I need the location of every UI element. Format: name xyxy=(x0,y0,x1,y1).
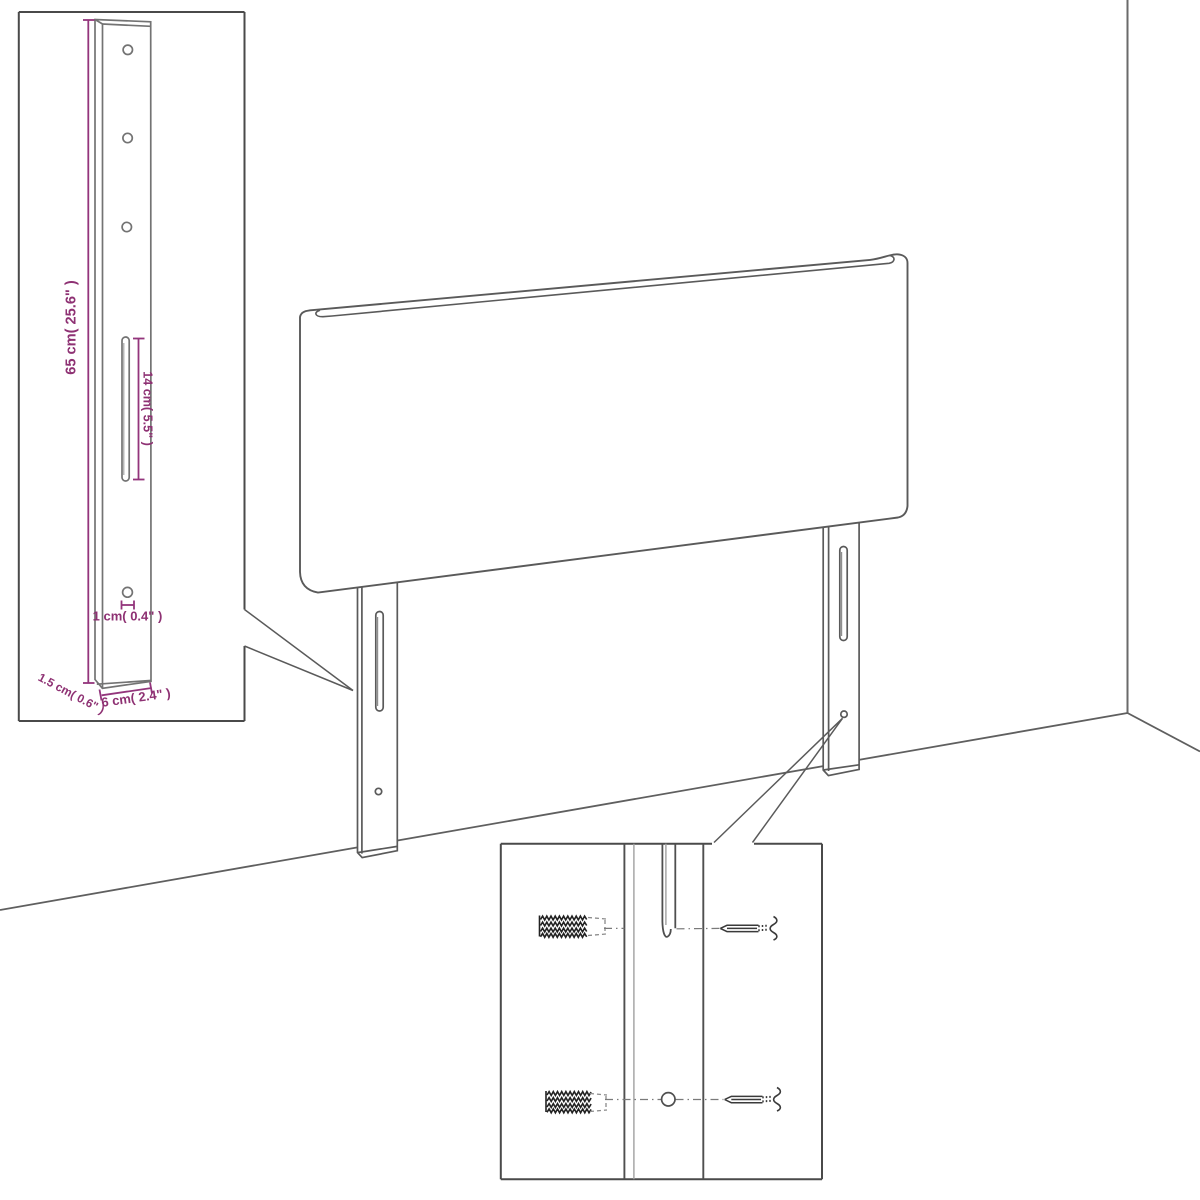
svg-text:65 cm( 25.6" ): 65 cm( 25.6" ) xyxy=(64,280,80,375)
svg-text:14 cm( 5.5" ): 14 cm( 5.5" ) xyxy=(141,371,155,446)
svg-text:1 cm( 0.4" ): 1 cm( 0.4" ) xyxy=(93,609,163,624)
